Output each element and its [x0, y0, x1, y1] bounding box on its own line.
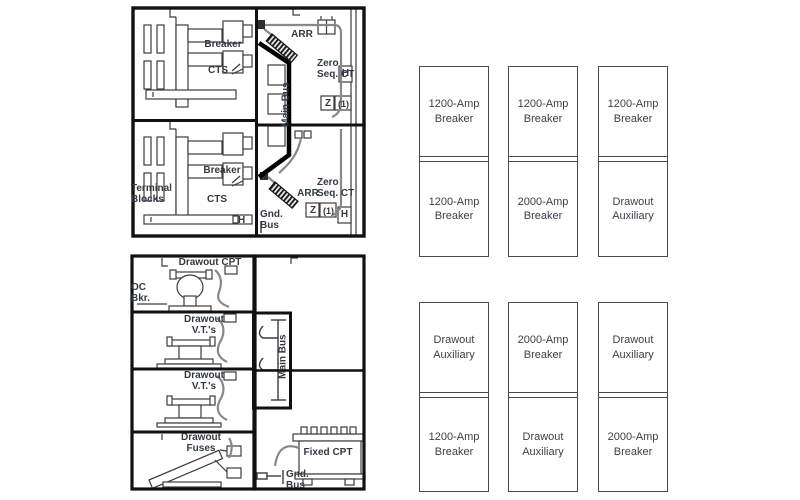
- plan-cell: 2000-Amp Breaker: [509, 303, 577, 393]
- label-gnd-bus-top: Gnd. Bus: [260, 209, 292, 231]
- label-terminal-blocks: Terminal Blocks: [131, 183, 185, 205]
- plan-column: Drawout Auxiliary 1200-Amp Breaker: [419, 302, 489, 492]
- plan-column: 2000-Amp Breaker Drawout Auxiliary: [508, 302, 578, 492]
- label-breaker-upper: Breaker: [194, 39, 252, 50]
- plan-cell: 1200-Amp Breaker: [599, 67, 667, 157]
- plan-cell: Drawout Auxiliary: [599, 161, 667, 256]
- label-arr-upper: ARR: [283, 29, 321, 40]
- label-drawout-fuses: Drawout Fuses: [170, 432, 232, 454]
- label-zero-seq-ct-lower: Zero Seq. CT: [317, 177, 355, 199]
- label-h-lower: H: [337, 209, 352, 220]
- label-main-bus-bottom: Main Bus: [277, 332, 288, 382]
- label-z-upper: Z: [321, 98, 335, 109]
- plan-cell: 1200-Amp Breaker: [509, 67, 577, 157]
- label-drawout-vts-upper: Drawout V.T.'s: [173, 314, 235, 336]
- label-h-bar: H: [238, 215, 254, 226]
- label-drawout-vts-lower: Drawout V.T.'s: [173, 370, 235, 392]
- label-z-note-lower: (1): [320, 206, 337, 216]
- label-fixed-cpt: Fixed CPT: [299, 447, 357, 458]
- plan-cell: 2000-Amp Breaker: [509, 161, 577, 256]
- plan-cell: 2000-Amp Breaker: [599, 397, 667, 491]
- plan-cell: Drawout Auxiliary: [509, 397, 577, 491]
- label-breaker-lower: Breaker: [193, 165, 251, 176]
- plan-cell: Drawout Auxiliary: [599, 303, 667, 393]
- plan-column: 1200-Amp Breaker 1200-Amp Breaker: [419, 66, 489, 257]
- label-gnd-bus-bottom: Gnd. Bus: [286, 469, 318, 491]
- plan-cell: 1200-Amp Breaker: [420, 67, 488, 157]
- label-main-bus-top: Main Bus: [280, 80, 291, 130]
- plan-column: Drawout Auxiliary 2000-Amp Breaker: [598, 302, 668, 492]
- label-h-upper: H: [338, 68, 353, 79]
- switchgear-diagram-page: Breaker CTS ARR Zero Seq. CT H Z (1) Mai…: [0, 0, 800, 500]
- plan-cell: Drawout Auxiliary: [420, 303, 488, 393]
- floor-plan-group-top: 1200-Amp Breaker 1200-Amp Breaker 1200-A…: [419, 66, 668, 257]
- label-z-note-upper: (1): [335, 99, 352, 109]
- plan-cell: 1200-Amp Breaker: [420, 397, 488, 491]
- label-z-lower: Z: [306, 205, 320, 216]
- label-oc-bkr: OC Bkr.: [131, 282, 159, 304]
- label-cts-lower: CTS: [199, 194, 235, 205]
- plan-column: 1200-Amp Breaker Drawout Auxiliary: [598, 66, 668, 257]
- label-cts-upper: CTS: [200, 65, 236, 76]
- plan-cell: 1200-Amp Breaker: [420, 161, 488, 256]
- label-drawout-cpt: Drawout CPT: [172, 257, 248, 268]
- floor-plan-group-bottom: Drawout Auxiliary 1200-Amp Breaker 2000-…: [419, 302, 668, 492]
- plan-column: 1200-Amp Breaker 2000-Amp Breaker: [508, 66, 578, 257]
